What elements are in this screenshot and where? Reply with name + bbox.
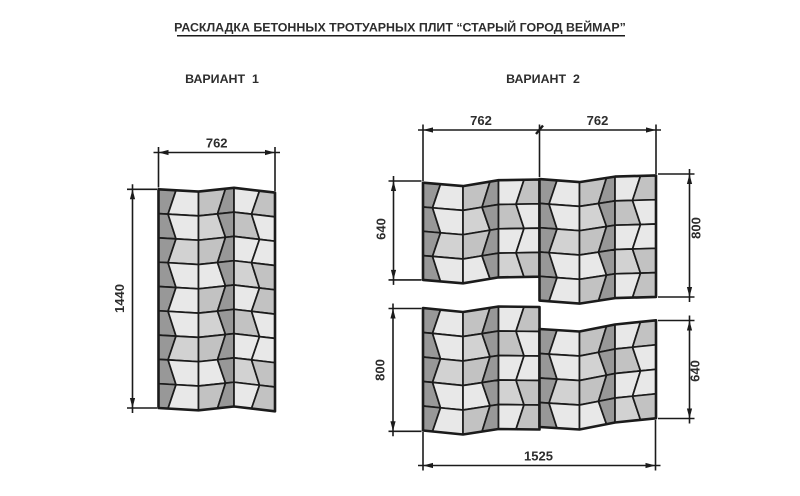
svg-text:762: 762: [587, 113, 609, 128]
svg-text:800: 800: [689, 217, 704, 239]
svg-text:1525: 1525: [524, 449, 553, 464]
svg-text:640: 640: [374, 218, 389, 240]
svg-text:640: 640: [688, 360, 703, 382]
svg-text:ВАРИАНТ 1: ВАРИАНТ 1: [185, 72, 259, 86]
svg-text:ВАРИАНТ 2: ВАРИАНТ 2: [506, 72, 580, 86]
svg-text:762: 762: [470, 113, 492, 128]
svg-text:РАСКЛАДКА БЕТОННЫХ ТРОТУАРНЫХ: РАСКЛАДКА БЕТОННЫХ ТРОТУАРНЫХ ПЛИТ “СТАР…: [174, 20, 626, 35]
svg-text:800: 800: [373, 359, 388, 381]
svg-text:762: 762: [206, 136, 228, 151]
svg-text:1440: 1440: [112, 284, 127, 313]
